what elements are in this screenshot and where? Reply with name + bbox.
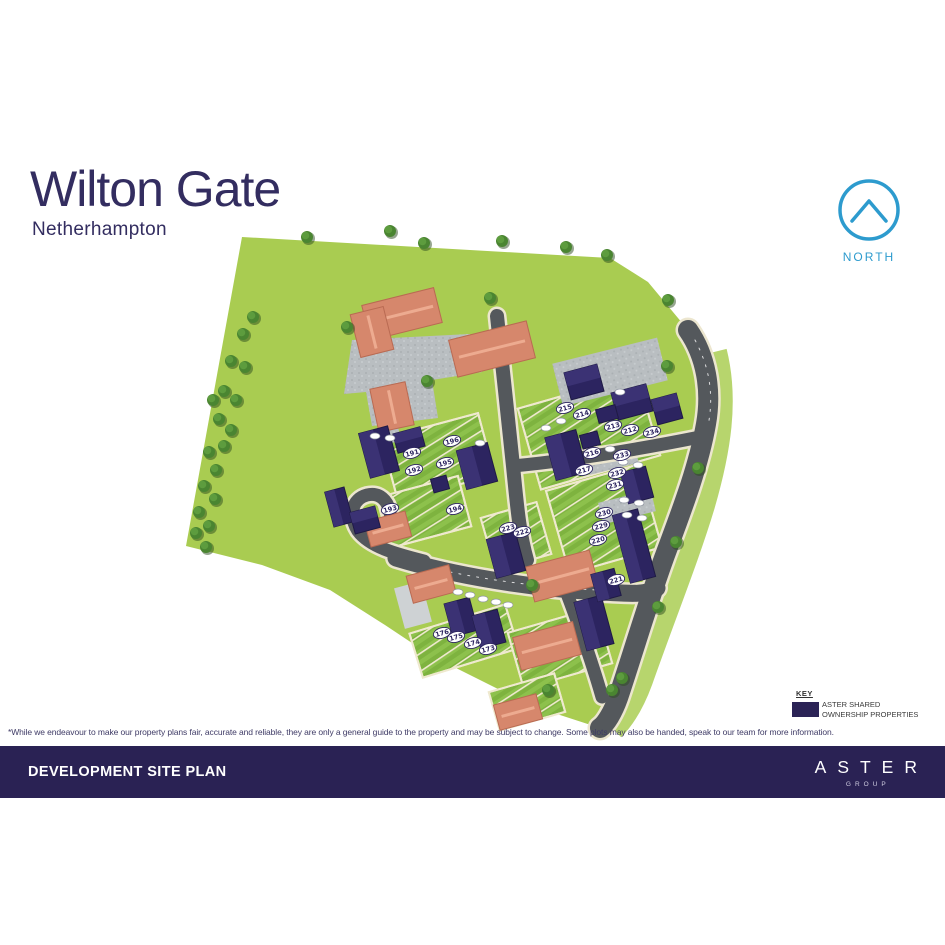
- driveways: [344, 334, 668, 629]
- svg-text:176: 176: [434, 628, 450, 639]
- plot-label: 174: [463, 636, 483, 651]
- svg-text:213: 213: [605, 421, 621, 432]
- svg-text:234: 234: [644, 427, 660, 438]
- house-shared-ownership: [611, 384, 653, 420]
- house-private: [362, 288, 443, 341]
- svg-text:221: 221: [608, 575, 624, 586]
- svg-text:194: 194: [447, 504, 463, 515]
- house-shared-ownership: [596, 405, 619, 424]
- house-private: [449, 321, 536, 377]
- house-shared-ownership: [574, 595, 614, 651]
- house-shared-ownership: [564, 364, 604, 400]
- house-shared-ownership: [456, 443, 497, 490]
- svg-text:175: 175: [448, 632, 464, 643]
- plot-label: 212: [620, 423, 640, 438]
- svg-text:233: 233: [614, 450, 630, 461]
- svg-text:223: 223: [500, 523, 516, 534]
- svg-text:195: 195: [437, 458, 453, 469]
- house-private: [493, 694, 542, 731]
- plot-label: 229: [591, 519, 611, 534]
- house-private: [525, 550, 598, 602]
- parking-bay-labels: [370, 389, 647, 608]
- plot-label: 232: [607, 466, 627, 481]
- house-shared-ownership: [393, 427, 425, 454]
- disclaimer-text: *While we endeavour to make our property…: [8, 727, 943, 737]
- plot-label: 221: [606, 573, 626, 588]
- svg-text:193: 193: [382, 504, 398, 515]
- house-private: [406, 565, 456, 603]
- plot-label: 230: [594, 506, 614, 521]
- footer-title: DEVELOPMENT SITE PLAN: [28, 764, 227, 780]
- plot-label: 192: [404, 463, 424, 478]
- shared-ownership-swatch: [792, 702, 819, 717]
- house-shared-ownership: [486, 532, 525, 578]
- svg-text:196: 196: [444, 436, 460, 447]
- house-shared-ownership: [651, 393, 683, 425]
- field: [186, 237, 706, 728]
- svg-text:220: 220: [590, 535, 606, 546]
- plot-label: 217: [574, 463, 594, 478]
- svg-text:216: 216: [584, 448, 600, 459]
- svg-text:230: 230: [596, 508, 612, 519]
- house-shared-ownership: [444, 597, 478, 637]
- plot-label: 222: [512, 525, 532, 540]
- svg-text:173: 173: [480, 644, 496, 655]
- aster-group-logo: ASTER GROUP: [815, 757, 917, 788]
- svg-text:212: 212: [622, 425, 638, 436]
- plot-label: 191: [402, 446, 422, 461]
- brand-name: ASTER: [815, 757, 928, 778]
- house-shared-ownership: [325, 487, 354, 527]
- house-shared-ownership: [591, 568, 621, 601]
- plot-labels: 1961951911921931941761751741732152142132…: [380, 401, 662, 657]
- plot-label: 233: [612, 448, 632, 463]
- house-private: [350, 307, 394, 358]
- house-shared-ownership: [579, 431, 600, 449]
- house-private: [370, 382, 414, 433]
- plot-label: 213: [603, 419, 623, 434]
- north-arrow-icon: [836, 178, 902, 242]
- house-private: [513, 622, 582, 671]
- svg-text:191: 191: [404, 448, 420, 459]
- plot-label: 175: [446, 630, 466, 645]
- plot-label: 216: [582, 446, 602, 461]
- svg-text:214: 214: [574, 409, 590, 420]
- house-shared-ownership: [612, 509, 655, 583]
- svg-text:215: 215: [557, 403, 573, 414]
- plot-label: 196: [442, 434, 462, 449]
- gardens: [377, 375, 662, 731]
- svg-text:192: 192: [406, 465, 422, 476]
- house-shared-ownership: [350, 506, 381, 534]
- plot-label: 194: [445, 502, 465, 517]
- plot-label: 214: [572, 407, 592, 422]
- footer-bar: DEVELOPMENT SITE PLAN ASTER GROUP: [0, 746, 945, 798]
- brand-subtitle: GROUP: [815, 781, 921, 788]
- house-shared-ownership: [430, 475, 449, 493]
- compass: NORTH: [836, 178, 902, 264]
- plot-label: 193: [380, 502, 400, 517]
- key-item-label: ASTER SHARED OWNERSHIP PROPERTIES: [822, 700, 918, 719]
- plot-label: 195: [435, 456, 455, 471]
- svg-text:217: 217: [576, 465, 592, 476]
- plot-label: 223: [498, 521, 518, 536]
- svg-text:229: 229: [593, 521, 609, 532]
- house-shared-ownership: [620, 466, 653, 504]
- houses-shared-ownership: [325, 364, 683, 651]
- site-plan-map: 1961951911921931941761751741732152142132…: [0, 0, 945, 945]
- plot-label: 176: [432, 626, 452, 641]
- house-shared-ownership: [472, 609, 506, 649]
- plot-label: 215: [555, 401, 575, 416]
- house-shared-ownership: [545, 430, 587, 481]
- roads: [352, 316, 710, 728]
- houses-private: [350, 288, 598, 731]
- page-subtitle: Netherhampton: [32, 219, 167, 241]
- roadside-verge: [612, 352, 720, 728]
- page-title: Wilton Gate: [30, 160, 280, 218]
- plot-label: 173: [478, 642, 498, 657]
- house-private: [364, 511, 411, 547]
- plot-label: 231: [605, 478, 625, 493]
- svg-text:232: 232: [609, 468, 625, 479]
- map-key: KEY ASTER SHARED OWNERSHIP PROPERTIES: [792, 689, 918, 719]
- trees: [190, 225, 706, 698]
- svg-text:231: 231: [607, 480, 623, 491]
- house-shared-ownership: [359, 426, 400, 478]
- svg-text:222: 222: [514, 527, 530, 538]
- svg-text:174: 174: [465, 638, 481, 649]
- key-item: ASTER SHARED OWNERSHIP PROPERTIES: [792, 700, 918, 719]
- plot-label: 234: [642, 425, 662, 440]
- plot-label: 220: [588, 533, 608, 548]
- north-label: NORTH: [836, 250, 902, 264]
- key-title: KEY: [796, 689, 918, 698]
